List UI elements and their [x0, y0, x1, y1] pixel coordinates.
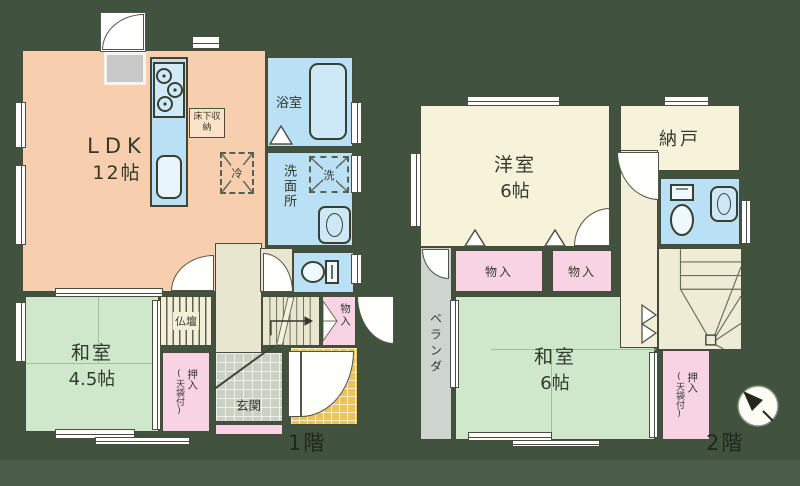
underfloor-storage-box: 床下収納 [189, 108, 225, 138]
yoshitsu-closet-door-mark-a [464, 229, 486, 247]
toilet-1f-right-window [351, 254, 362, 284]
oshiire-2f-label: 押入 (天袋付) [673, 372, 699, 419]
washitsu-1f-size: 4.5帖 [69, 365, 116, 391]
oshiire-1f-note: (天袋付) [173, 369, 185, 416]
washer-box: 洗 [309, 156, 349, 193]
room-washitsu-1f: 和室 4.5帖 [25, 296, 159, 432]
washitsu-1f-fusuma [152, 300, 161, 430]
washitsu-1f-name: 和室 [71, 338, 113, 365]
genkan-label: 玄関 [236, 395, 261, 414]
washitsu-1f-bottom-window-b [95, 437, 190, 445]
yoshitsu-size: 6帖 [500, 177, 529, 203]
kitchen-sink-icon [156, 155, 182, 199]
underfloor-storage-label: 床下収納 [192, 112, 222, 135]
oshiire-2f-name: 押入 [685, 372, 699, 419]
yoshitsu-left-window [410, 153, 421, 227]
nando-label: 納戸 [659, 125, 701, 151]
ldk-left-window-b [15, 165, 26, 245]
monoire-door-arc [357, 296, 394, 344]
washroom-right-window [351, 155, 362, 193]
washer-label: 洗 [323, 167, 336, 183]
toilet-icon-1f [299, 258, 343, 286]
compass-icon [735, 383, 781, 429]
washitsu-2f-size: 6帖 [540, 369, 569, 395]
bathtub-icon [309, 63, 347, 140]
hallway-1f [215, 243, 262, 353]
floor1-label: 1階 [288, 427, 326, 457]
back-door-step [104, 52, 146, 85]
stairs-2f [658, 248, 742, 350]
fridge-label: 冷 [231, 165, 244, 181]
washitsu-2f-name: 和室 [534, 342, 576, 369]
washroom-label: 洗面所 [279, 164, 298, 209]
monoire-2f-b-label: 物入 [568, 263, 596, 280]
closet-oshiire-2f: 押入 (天袋付) [662, 350, 710, 440]
toilet-2f-right-window [741, 200, 751, 244]
stairs-1f [262, 296, 320, 346]
closet-monoire-2f-b: 物入 [552, 250, 612, 292]
bath-folding-door-mark [269, 125, 293, 145]
genkan-step [215, 424, 283, 435]
washitsu-2f-door-marks [641, 303, 658, 345]
washbasin-icon-2f [710, 186, 738, 222]
front-door-leaf [288, 351, 301, 417]
monoire-2f-a-label: 物入 [485, 263, 513, 280]
washitsu-1f-left-window [15, 302, 26, 362]
closet-oshiire-1f: 押入 (天袋付) [162, 352, 210, 432]
bathroom-right-window [351, 102, 362, 144]
yoshitsu-top-window [467, 96, 560, 106]
floor2-label: 2階 [706, 427, 744, 457]
toilet-icon-2f [668, 183, 696, 241]
nando-top-window [664, 96, 709, 106]
veranda-label: ベランダ [428, 312, 445, 376]
folding-door-mark [323, 298, 339, 344]
oshiire-1f-label: 押入 (天袋付) [173, 369, 199, 416]
washitsu-2f-fusuma [649, 352, 658, 438]
oshiire-1f-name: 押入 [185, 369, 199, 416]
washitsu-2f-veranda-door [450, 300, 459, 388]
monoire-1f-label: 物入 [338, 303, 353, 328]
closet-monoire-2f-a: 物入 [455, 250, 543, 292]
oshiire-2f-note: (天袋付) [673, 372, 685, 419]
ldk-left-window-a [15, 102, 26, 148]
washbasin-icon [318, 206, 351, 244]
yoshitsu-closet-door-mark-b [544, 229, 566, 247]
closet-monoire-1f: 物入 [322, 296, 356, 346]
back-door [100, 12, 146, 52]
yoshitsu-name: 洋室 [494, 150, 536, 177]
fridge-box: 冷 [220, 152, 254, 194]
washitsu-2f-bottom-window-b [512, 440, 600, 447]
room-butsudan: 仏壇 [160, 296, 212, 346]
butsudan-label: 仏壇 [173, 312, 199, 330]
bathroom-label: 浴室 [276, 92, 302, 111]
ldk-washitsu-sliding-door [55, 288, 163, 297]
floorplan-canvas: LDK 12帖 床下収納 冷 浴室 洗面所 洗 [0, 0, 800, 486]
ldk-top-window [192, 36, 220, 49]
stove-icon [153, 62, 185, 118]
